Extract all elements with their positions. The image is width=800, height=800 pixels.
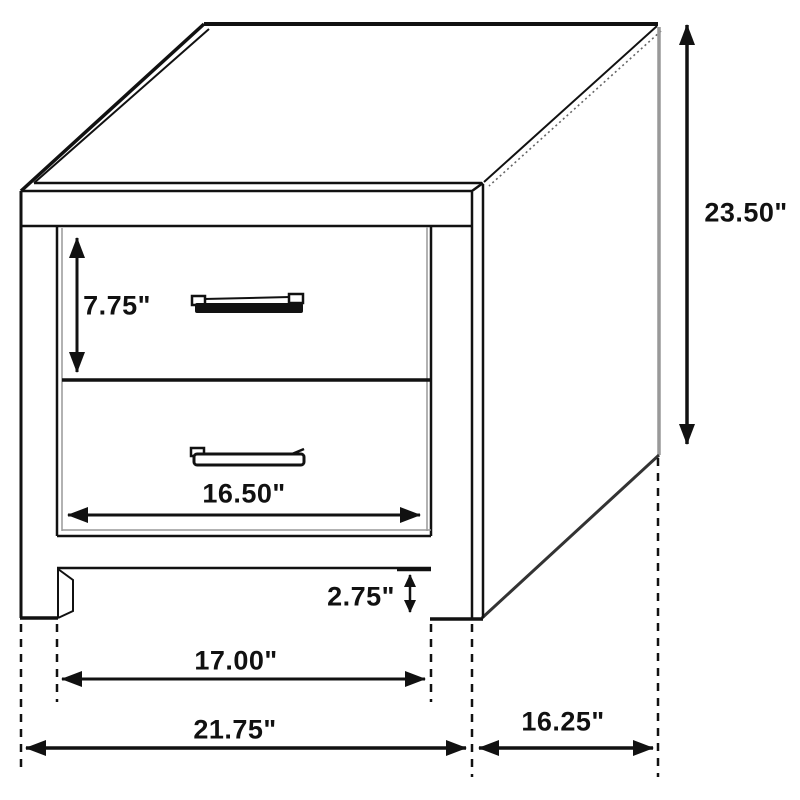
dim-label-depth: 16.25" [521, 709, 604, 736]
nightstand-line-drawing [0, 0, 800, 800]
dim-label-inner-width: 17.00" [194, 648, 277, 675]
dim-label-base-clearance: 2.75" [327, 584, 395, 611]
dim-label-drawer-width: 16.50" [202, 481, 285, 508]
front-legs [20, 568, 483, 619]
dimension-arrows [26, 25, 687, 748]
dim-label-overall-width: 21.75" [193, 717, 276, 744]
drawer-handle-top [192, 294, 303, 313]
front-frame [21, 183, 483, 618]
top-panel [21, 24, 661, 191]
drawer-handle-bottom [191, 448, 304, 465]
dim-label-drawer-front-height: 7.75" [83, 293, 151, 320]
dim-label-overall-height: 23.50" [704, 200, 787, 227]
side-panel [482, 27, 659, 618]
diagram-canvas: 7.75" 23.50" 16.50" 2.75" 17.00" 21.75" … [0, 0, 800, 800]
